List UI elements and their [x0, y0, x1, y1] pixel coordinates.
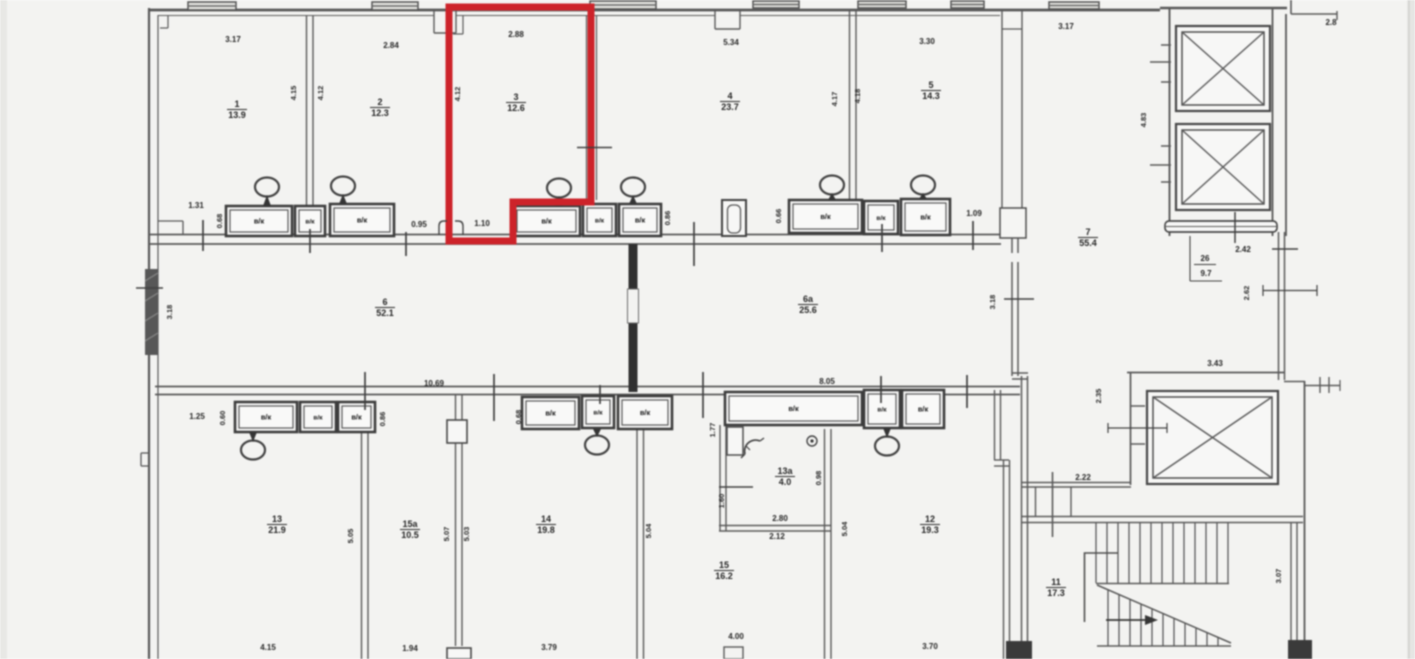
svg-text:в/к: в/к — [313, 415, 323, 422]
svg-text:0.86: 0.86 — [663, 211, 672, 226]
svg-text:0.68: 0.68 — [514, 410, 523, 425]
svg-text:2.80: 2.80 — [772, 514, 788, 523]
svg-text:2.35: 2.35 — [1094, 389, 1103, 404]
svg-text:12.3: 12.3 — [371, 108, 389, 118]
svg-text:5.05: 5.05 — [346, 529, 355, 544]
svg-text:в/к: в/к — [788, 404, 799, 413]
svg-text:4.12: 4.12 — [453, 87, 462, 102]
svg-text:1.10: 1.10 — [474, 219, 490, 228]
svg-text:2.84: 2.84 — [383, 41, 399, 50]
svg-text:в/к: в/к — [254, 217, 265, 226]
svg-text:10.69: 10.69 — [424, 379, 445, 388]
svg-text:в/к: в/к — [920, 213, 931, 222]
svg-text:4.15: 4.15 — [289, 86, 298, 101]
svg-text:16.2: 16.2 — [715, 571, 733, 581]
svg-text:в/к: в/к — [545, 409, 556, 418]
svg-text:17.3: 17.3 — [1047, 588, 1065, 598]
svg-text:4: 4 — [727, 91, 732, 101]
svg-text:6a: 6a — [803, 294, 814, 304]
svg-text:5.03: 5.03 — [462, 527, 471, 542]
svg-text:5.34: 5.34 — [723, 38, 739, 47]
svg-text:4.00: 4.00 — [728, 632, 744, 641]
svg-text:в/к: в/к — [541, 217, 552, 226]
svg-text:1.09: 1.09 — [966, 209, 982, 218]
svg-text:3.43: 3.43 — [1207, 359, 1223, 368]
svg-text:3.18: 3.18 — [165, 305, 174, 320]
svg-text:1.94: 1.94 — [402, 644, 418, 653]
svg-text:1: 1 — [234, 99, 239, 109]
svg-text:26: 26 — [1201, 254, 1210, 263]
svg-text:15: 15 — [719, 560, 729, 570]
svg-text:в/к: в/к — [918, 405, 929, 414]
svg-text:2.42: 2.42 — [1235, 245, 1251, 254]
svg-text:1.31: 1.31 — [188, 201, 204, 210]
svg-text:10.5: 10.5 — [401, 530, 419, 540]
svg-text:0.68: 0.68 — [215, 214, 224, 229]
svg-text:55.4: 55.4 — [1079, 238, 1097, 248]
svg-text:12: 12 — [925, 514, 935, 524]
svg-text:13a: 13a — [777, 466, 793, 476]
svg-text:11: 11 — [1051, 577, 1061, 587]
svg-text:52.1: 52.1 — [376, 308, 394, 318]
svg-text:в/к: в/к — [640, 408, 651, 417]
svg-text:в/к: в/к — [593, 410, 603, 417]
svg-text:13.9: 13.9 — [228, 110, 246, 120]
svg-text:5: 5 — [928, 80, 933, 90]
svg-text:19.3: 19.3 — [921, 525, 939, 535]
svg-text:14.3: 14.3 — [922, 91, 940, 101]
svg-text:4.0: 4.0 — [779, 477, 792, 487]
svg-text:4.17: 4.17 — [830, 92, 839, 107]
svg-text:14: 14 — [541, 514, 551, 524]
svg-text:в/к: в/к — [357, 216, 368, 225]
svg-text:в/к: в/к — [261, 413, 272, 422]
svg-text:13: 13 — [272, 514, 282, 524]
svg-text:4.15: 4.15 — [260, 643, 276, 652]
svg-text:9.7: 9.7 — [1200, 269, 1212, 278]
svg-text:0.60: 0.60 — [218, 411, 227, 426]
svg-text:7: 7 — [1085, 227, 1090, 237]
svg-text:в/к: в/к — [595, 218, 605, 225]
svg-text:3: 3 — [513, 92, 518, 102]
svg-text:4.18: 4.18 — [853, 89, 862, 104]
svg-text:0.98: 0.98 — [814, 471, 823, 486]
svg-text:4.12: 4.12 — [316, 86, 325, 101]
svg-text:в/к: в/к — [351, 413, 362, 422]
svg-text:0.86: 0.86 — [378, 412, 387, 427]
svg-text:в/к: в/к — [876, 215, 886, 222]
svg-text:в/к: в/к — [635, 216, 646, 225]
svg-text:23.7: 23.7 — [721, 102, 739, 112]
svg-text:6: 6 — [382, 297, 387, 307]
svg-text:1.77: 1.77 — [708, 423, 717, 438]
svg-text:в/к: в/к — [820, 212, 831, 221]
svg-text:3.17: 3.17 — [1058, 22, 1074, 31]
svg-text:3.70: 3.70 — [922, 642, 938, 651]
svg-text:0.95: 0.95 — [411, 220, 427, 229]
svg-text:2.22: 2.22 — [1075, 473, 1091, 482]
svg-text:2.88: 2.88 — [508, 30, 524, 39]
svg-text:3.18: 3.18 — [988, 295, 997, 310]
svg-text:в/к: в/к — [877, 407, 887, 414]
svg-text:2: 2 — [377, 97, 382, 107]
svg-text:15a: 15a — [402, 519, 418, 529]
svg-text:5.04: 5.04 — [644, 523, 653, 538]
svg-text:12.6: 12.6 — [507, 103, 525, 113]
svg-text:25.6: 25.6 — [799, 305, 817, 315]
svg-text:3.79: 3.79 — [541, 643, 557, 652]
svg-text:1.60: 1.60 — [717, 494, 726, 509]
svg-text:5.04: 5.04 — [840, 521, 849, 536]
svg-text:0.66: 0.66 — [774, 209, 783, 224]
svg-text:2.8: 2.8 — [1325, 18, 1337, 27]
svg-text:3.07: 3.07 — [1274, 569, 1283, 584]
svg-text:2.12: 2.12 — [769, 532, 785, 541]
svg-text:8.05: 8.05 — [819, 377, 835, 386]
svg-text:21.9: 21.9 — [268, 525, 286, 535]
svg-text:2.62: 2.62 — [1242, 286, 1251, 301]
svg-text:в/к: в/к — [305, 219, 315, 226]
svg-text:1.25: 1.25 — [189, 412, 205, 421]
svg-text:4.83: 4.83 — [1139, 113, 1148, 128]
svg-text:3.17: 3.17 — [225, 35, 241, 44]
svg-text:19.8: 19.8 — [537, 525, 555, 535]
svg-text:3.30: 3.30 — [919, 37, 935, 46]
svg-text:5.07: 5.07 — [442, 527, 451, 542]
